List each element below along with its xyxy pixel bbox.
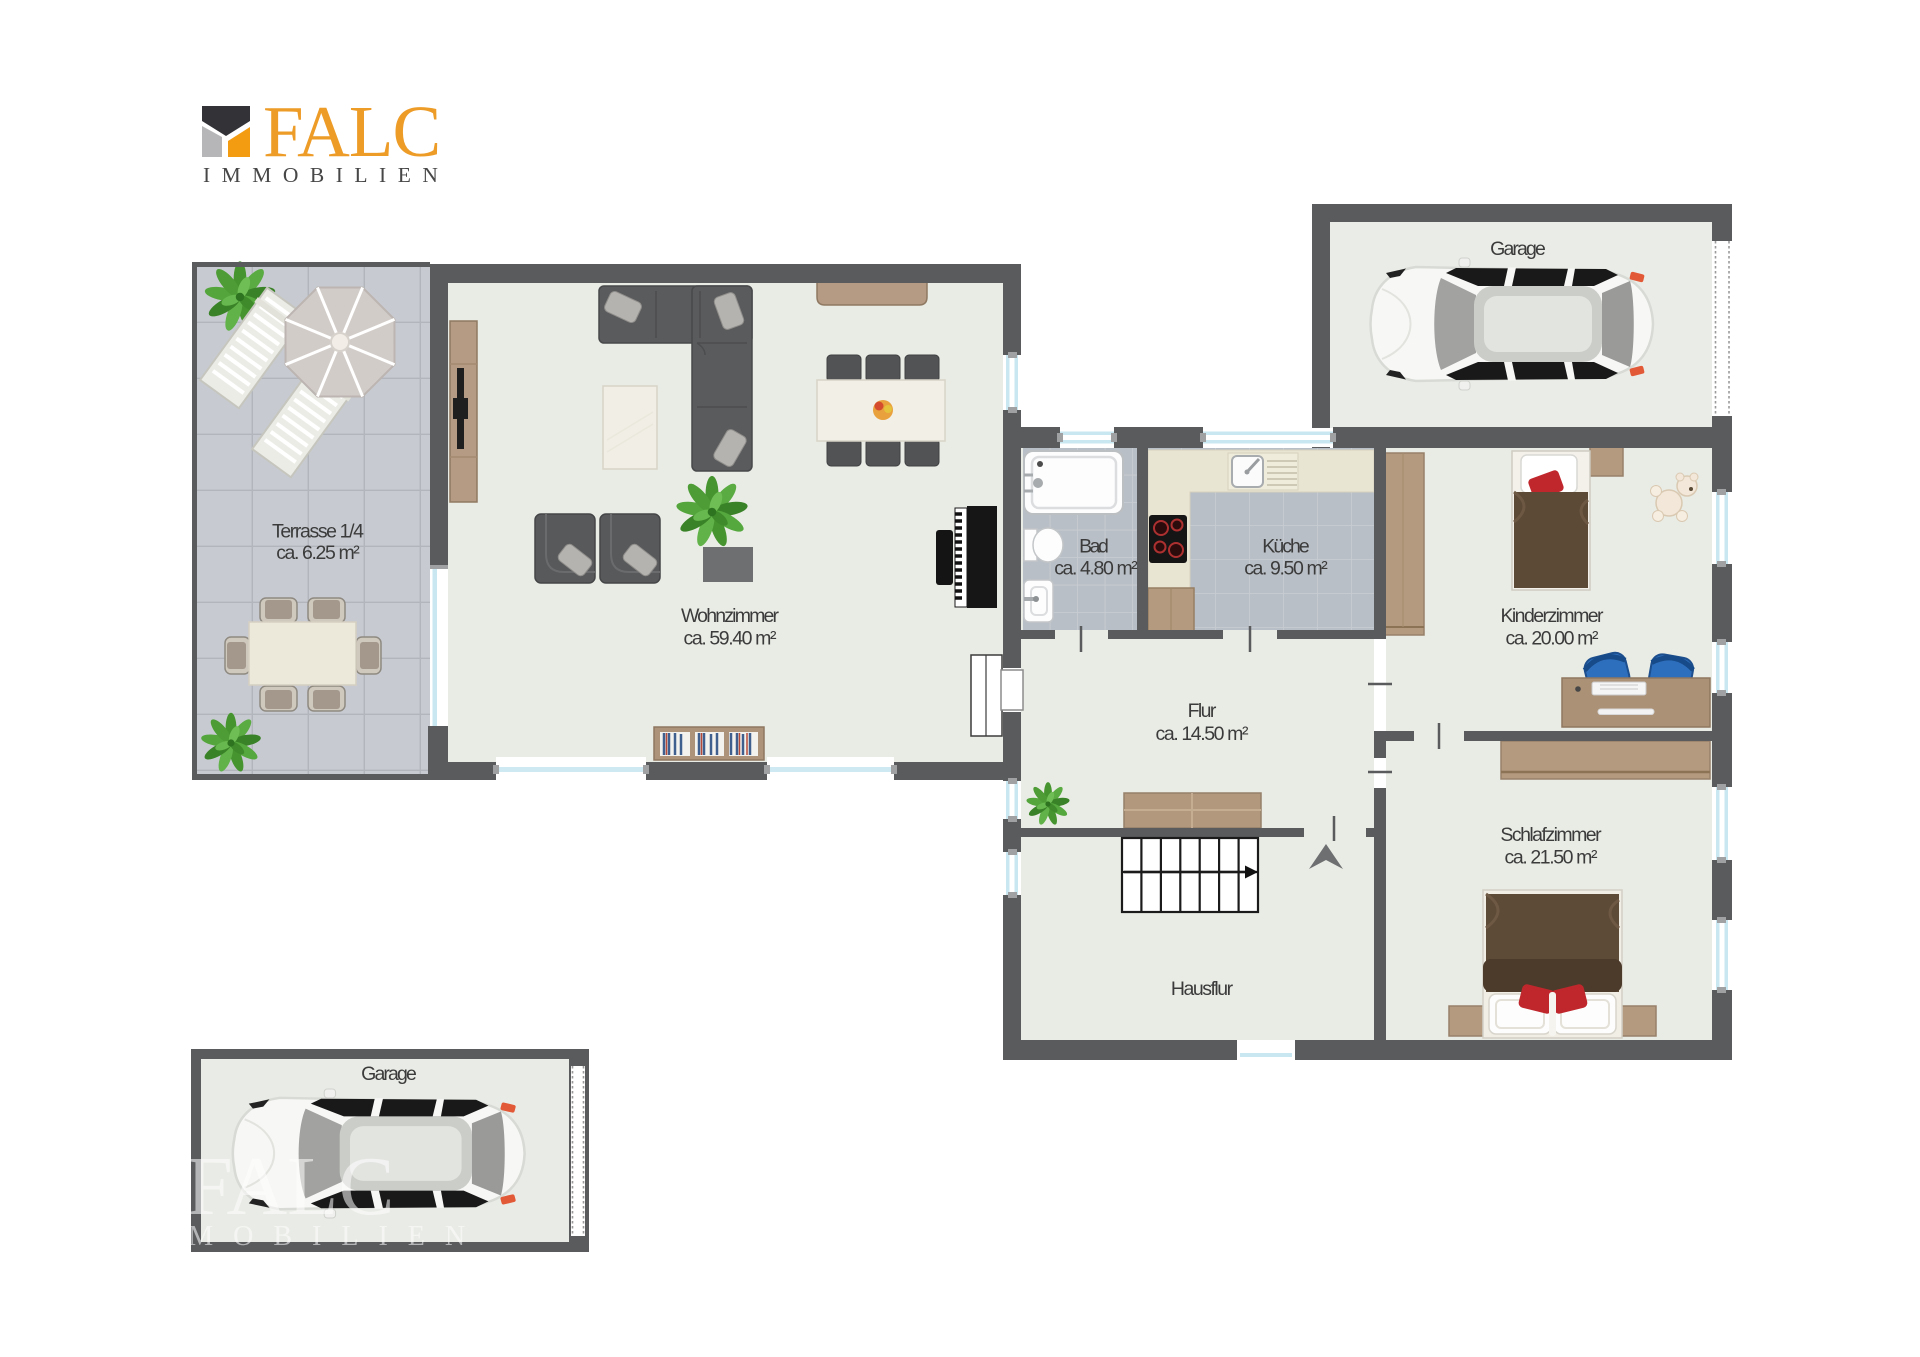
svg-text:Wohnzimmer: Wohnzimmer — [681, 605, 780, 627]
svg-text:IMMOBILIEN: IMMOBILIEN — [203, 163, 449, 187]
svg-text:FALC: FALC — [263, 91, 440, 172]
svg-text:FALC: FALC — [186, 1140, 394, 1233]
svg-text:Schlafzimmer: Schlafzimmer — [1500, 824, 1602, 846]
svg-text:Terrasse 1/4: Terrasse 1/4 — [272, 521, 364, 543]
svg-text:Hausflur: Hausflur — [1171, 978, 1234, 1000]
svg-text:Garage: Garage — [1490, 238, 1546, 260]
svg-text:IMMOBILIEN: IMMOBILIEN — [114, 1221, 485, 1252]
svg-text:ca. 9.50 m²: ca. 9.50 m² — [1244, 558, 1328, 580]
svg-text:Garage: Garage — [361, 1063, 417, 1085]
svg-text:ca. 4.80 m²: ca. 4.80 m² — [1054, 558, 1138, 580]
svg-text:Bad: Bad — [1079, 536, 1109, 558]
svg-text:ca. 20.00 m²: ca. 20.00 m² — [1506, 628, 1599, 650]
svg-text:Flur: Flur — [1188, 700, 1217, 722]
svg-text:Kinderzimmer: Kinderzimmer — [1500, 605, 1604, 627]
svg-text:ca. 21.50 m²: ca. 21.50 m² — [1505, 847, 1598, 869]
svg-text:Küche: Küche — [1262, 536, 1309, 558]
svg-text:ca. 6.25 m²: ca. 6.25 m² — [276, 542, 360, 564]
svg-text:ca. 14.50 m²: ca. 14.50 m² — [1156, 723, 1249, 745]
svg-text:ca. 59.40 m²: ca. 59.40 m² — [684, 628, 777, 650]
